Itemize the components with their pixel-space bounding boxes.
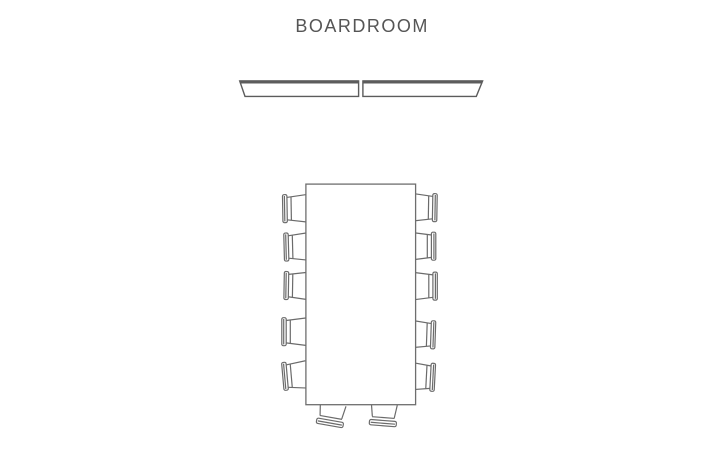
svg-text:BOARDROOM: BOARDROOM — [295, 16, 429, 36]
